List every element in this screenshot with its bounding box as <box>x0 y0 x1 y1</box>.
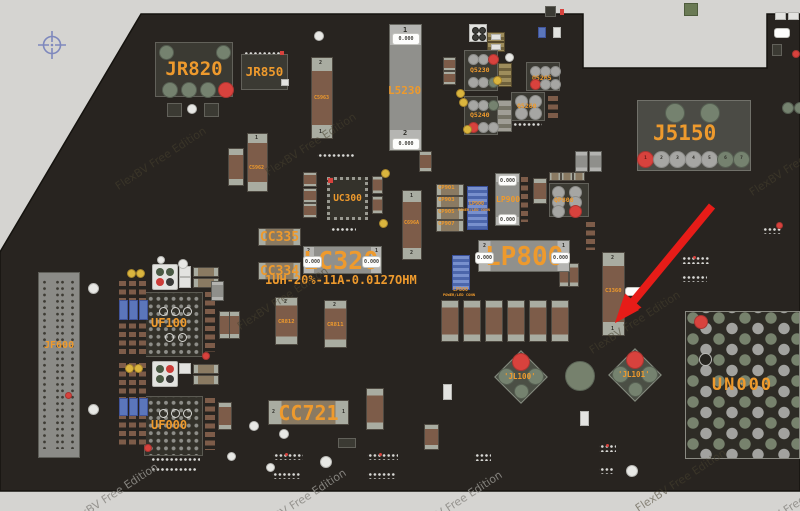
measurement-tag: 0.000 <box>392 138 420 150</box>
pad-pin1 <box>218 82 234 98</box>
pad-pin1 <box>694 315 708 329</box>
component-j5150[interactable]: J5150 1 2 3 4 5 6 7 <box>637 100 751 171</box>
testpoint-gold <box>136 269 145 278</box>
part-label: QP800 <box>554 197 574 204</box>
pin-number: 2 <box>403 130 407 137</box>
component-uc300[interactable]: UC300 <box>327 177 368 220</box>
pad <box>512 353 530 371</box>
part-label: CC335 <box>260 231 299 244</box>
part-label: UF000 <box>151 419 187 431</box>
smd-part <box>575 151 588 172</box>
testpoint <box>227 452 236 461</box>
smd-part <box>549 172 561 181</box>
pad <box>202 352 210 360</box>
testpoint <box>178 259 188 269</box>
smd-part <box>204 103 219 117</box>
testpoint <box>505 53 514 62</box>
pad: 3 <box>669 151 686 168</box>
smd-part <box>129 300 138 320</box>
component-q5260[interactable]: Q5260 <box>511 92 545 121</box>
testpoint <box>88 283 99 294</box>
pad <box>628 382 643 397</box>
part-label: UC300 <box>333 194 362 204</box>
part-label: JF600 <box>44 341 74 351</box>
pad-row <box>317 152 355 159</box>
pad <box>626 351 644 369</box>
pad <box>144 444 152 452</box>
part-label: JR820 <box>165 60 222 79</box>
smd-capacitor <box>424 424 439 450</box>
smd-part <box>560 9 564 15</box>
part-label: C5962 <box>249 166 264 171</box>
connector-pads <box>681 255 710 264</box>
pad <box>792 50 800 58</box>
testpoint-gold <box>463 125 472 134</box>
testpoint-gold <box>134 364 143 373</box>
smd-capacitor <box>569 263 579 287</box>
part-label: L5230 <box>388 85 421 96</box>
pad <box>159 45 174 60</box>
part-label: CP901 <box>438 186 455 192</box>
smd-part <box>119 300 128 320</box>
smd-part <box>179 363 191 374</box>
part-label: UN000 <box>712 377 773 394</box>
connector-pads <box>599 443 616 452</box>
smd-capacitor <box>485 300 503 342</box>
component-c3360[interactable]: 2 C3360 1 <box>602 252 625 336</box>
part-label: J5150 <box>653 123 716 144</box>
smd-capacitor <box>366 388 384 430</box>
pad: 2 <box>653 151 670 168</box>
connector-pads <box>367 471 396 479</box>
component-q5230[interactable]: Q5230 <box>464 50 498 91</box>
pin-number: 2 <box>410 251 413 256</box>
pin-number: 1 <box>255 136 258 141</box>
pad <box>776 222 783 229</box>
component-cr811[interactable]: 2 CR811 <box>324 300 347 348</box>
smd-part <box>788 12 799 20</box>
pad-pin1 <box>328 178 333 183</box>
part-sub-label: POWER/LED CONN <box>458 209 490 213</box>
component-uf100[interactable]: UF100 <box>144 292 203 357</box>
part-label: C696A <box>404 221 419 226</box>
smd-part <box>193 375 219 385</box>
part-label: CP905 <box>438 210 455 216</box>
part-label: CP903 <box>438 198 455 204</box>
pin-number: 2 <box>333 303 336 308</box>
smd-part <box>281 79 289 86</box>
smd-part <box>533 178 547 204</box>
measurement-tag: 0.000 <box>498 214 517 225</box>
part-label: CC721 <box>278 403 338 423</box>
part-label: 'JL100' <box>504 373 536 381</box>
measurement-tag: 0.000 <box>362 256 381 268</box>
smd-part <box>205 292 215 352</box>
component-cc721[interactable]: 2 1 CC721 <box>268 400 349 425</box>
smd-capacitor <box>507 300 525 342</box>
smd-part <box>211 281 224 301</box>
smd-part <box>303 188 317 203</box>
component-q5265[interactable]: Q5265 <box>526 62 560 91</box>
testpoint <box>320 456 332 468</box>
smd-part <box>586 222 595 250</box>
smd-part <box>469 24 487 42</box>
component-lp800-connector[interactable] <box>452 255 470 290</box>
connector-pads <box>681 274 707 282</box>
pad <box>65 392 72 399</box>
pin-number: 1 <box>410 194 413 199</box>
component-jf600[interactable]: JF600 <box>38 272 80 458</box>
smd-part <box>443 57 456 71</box>
part-label: CP907 <box>438 222 455 228</box>
testpoint-gold <box>125 364 134 373</box>
part-label: Q5240 <box>470 112 490 119</box>
smd-part <box>193 364 219 374</box>
testpoint <box>279 429 289 439</box>
measurement-tag: 0.000 <box>392 33 420 45</box>
smd-part <box>553 27 561 38</box>
smd-part <box>129 398 138 416</box>
pad <box>514 384 529 399</box>
smd-part <box>443 71 456 85</box>
part-label: CR811 <box>327 323 344 329</box>
part-label: C5963 <box>314 96 329 101</box>
testpoint <box>626 465 638 477</box>
pad <box>216 45 231 60</box>
mounting-pad <box>565 361 595 391</box>
pad <box>782 102 794 114</box>
testpoint <box>88 404 99 415</box>
smd-part <box>205 398 215 450</box>
smd-capacitor <box>529 300 547 342</box>
part-label: 'JL101' <box>618 371 650 379</box>
component-cr812[interactable]: 2 CR812 <box>275 297 298 345</box>
smd-part <box>775 12 786 20</box>
smd-capacitor <box>228 148 244 186</box>
pin-number: 1 <box>319 130 322 135</box>
smd-part <box>548 96 558 118</box>
pad <box>699 353 712 366</box>
smd-part <box>179 277 191 288</box>
smd-part <box>580 411 589 426</box>
component-cc335[interactable]: CC335 <box>258 228 301 246</box>
smd-part <box>625 287 643 296</box>
smd-capacitor <box>463 300 481 342</box>
part-sub-label: POWER/LED CONN <box>443 294 475 298</box>
inductor-spec-text: 1UH-20%-11A-0.0127OHM <box>265 274 417 286</box>
smd-capacitor <box>441 300 459 342</box>
smd-part <box>772 44 782 56</box>
pad <box>200 82 216 98</box>
pad: 4 <box>685 151 702 168</box>
smd-part <box>303 172 317 187</box>
pad <box>162 82 178 98</box>
smd-part <box>589 151 602 172</box>
pad <box>794 102 800 114</box>
testpoint-gold <box>456 89 465 98</box>
pin-number: 2 <box>319 61 322 66</box>
smd-part <box>218 402 232 430</box>
measurement-tag: 0.000 <box>475 252 494 264</box>
measurement-tag: 0.000 <box>498 175 517 186</box>
smd-part <box>561 172 573 181</box>
component-c696a[interactable]: 1 C696A 2 <box>402 190 422 260</box>
pad: 5 <box>701 151 718 168</box>
component-c5963[interactable]: 2 1 C5963 <box>311 57 333 139</box>
component-un000[interactable]: UN000 <box>685 311 800 459</box>
smd-part <box>303 203 317 218</box>
smd-part <box>372 176 383 194</box>
smd-part <box>152 361 178 387</box>
pad-row <box>330 226 356 233</box>
smd-part <box>573 172 585 181</box>
testpoint-gold <box>459 98 468 107</box>
crosshair-icon <box>36 29 68 61</box>
testpoint <box>157 256 165 264</box>
smd-part <box>521 177 528 222</box>
pin-number: 2 <box>272 410 275 415</box>
smd-part <box>487 32 505 42</box>
smd-part <box>419 151 432 172</box>
part-label: JR850 <box>246 66 284 79</box>
smd-part <box>152 264 178 290</box>
part-label: LP900 <box>469 202 484 207</box>
pad-row <box>150 466 196 472</box>
pad-pin1: 1 <box>637 151 654 168</box>
component-qp800[interactable]: QP800 <box>549 183 589 217</box>
pad <box>280 51 284 55</box>
part-label: CR812 <box>278 320 295 326</box>
testpoint-gold <box>127 269 136 278</box>
smd-part <box>167 103 182 117</box>
smd-part <box>139 398 148 416</box>
part-label: LP800 <box>453 288 468 293</box>
testpoint <box>249 421 259 431</box>
connector-pads <box>273 452 303 460</box>
component-jr820[interactable]: JR820 <box>155 42 233 97</box>
part-label: UF100 <box>151 317 187 329</box>
measurement-tag: 0.000 <box>303 256 322 268</box>
connector-pads <box>474 452 491 461</box>
testpoint <box>187 104 197 114</box>
pin-number: 2 <box>611 256 614 261</box>
component-c5962[interactable]: 1 C5962 <box>247 133 268 192</box>
smd-part <box>338 438 356 448</box>
pin-number: 2 <box>284 300 287 305</box>
pad: 7 <box>733 151 750 168</box>
connector-pads <box>367 452 398 460</box>
smd-part <box>193 267 219 277</box>
connector-pads <box>272 471 300 479</box>
testpoint <box>314 31 324 41</box>
smd-part <box>774 28 790 38</box>
connector-pads <box>599 466 614 474</box>
pad <box>181 82 197 98</box>
smd-capacitor <box>551 300 569 342</box>
testpoint-gold <box>493 76 502 85</box>
smd-part <box>443 384 452 400</box>
smd-part <box>538 27 546 38</box>
smd-part <box>139 300 148 320</box>
part-label: Q5260 <box>517 103 537 110</box>
smd-part <box>372 196 383 214</box>
part-label: Q5230 <box>470 67 490 74</box>
testpoint <box>266 463 275 472</box>
pad-row <box>150 456 200 463</box>
pad: 6 <box>717 151 734 168</box>
part-label: C3360 <box>605 289 622 295</box>
pad-row <box>512 121 542 128</box>
smd-part <box>545 6 556 17</box>
smd-part <box>119 398 128 416</box>
component-uf000[interactable]: UF000 <box>144 396 203 456</box>
pin-number: 1 <box>611 327 614 332</box>
testpoint-gold <box>379 219 388 228</box>
part-label: LP900 <box>496 196 520 204</box>
pin-number: 1 <box>342 410 345 415</box>
smd-part <box>229 311 240 339</box>
board-viewer-canvas: JR820 JR850 2 1 C5963 1 C5962 1 L5230 2 … <box>0 0 800 511</box>
smd-part <box>684 3 698 16</box>
measurement-tag: 0.000 <box>551 252 570 264</box>
testpoint-gold <box>381 169 390 178</box>
